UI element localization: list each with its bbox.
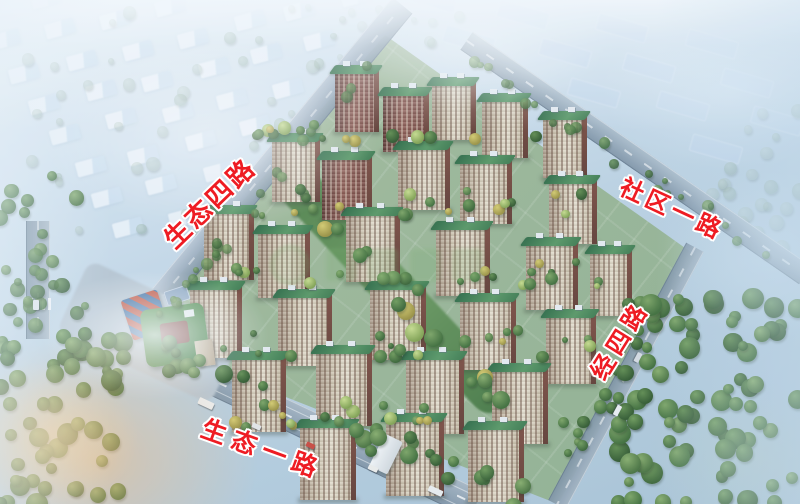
tree xyxy=(320,412,330,422)
tree xyxy=(404,188,416,200)
tree xyxy=(379,401,388,410)
tree xyxy=(370,429,387,446)
tree xyxy=(492,391,510,409)
tree xyxy=(4,184,18,198)
tree xyxy=(561,210,570,219)
fog-glow xyxy=(350,0,610,110)
tree xyxy=(478,373,492,387)
building-roof xyxy=(462,421,529,430)
background-villa xyxy=(44,18,77,40)
tree xyxy=(549,119,557,127)
tree xyxy=(285,350,297,362)
building-roof xyxy=(584,245,637,254)
building-side xyxy=(573,241,578,310)
tree xyxy=(500,199,509,208)
rooftop-structure xyxy=(524,359,531,364)
tree xyxy=(624,477,634,487)
tree xyxy=(485,333,493,341)
building-side xyxy=(543,367,548,444)
building-facade xyxy=(398,148,446,210)
tree xyxy=(46,255,59,268)
background-villa xyxy=(233,10,266,32)
tree xyxy=(386,129,399,142)
background-villa xyxy=(29,0,62,10)
building-side xyxy=(582,115,587,178)
tree xyxy=(620,453,641,474)
tree xyxy=(37,229,48,240)
tree xyxy=(201,258,213,270)
tree xyxy=(19,207,30,218)
tree xyxy=(599,388,612,401)
background-villa xyxy=(283,0,316,22)
fog-glow xyxy=(600,10,800,170)
aerial-masterplan-rendering: 生态四路 社区一路 经四路 生态一路 xyxy=(0,0,800,504)
rooftop-structure xyxy=(502,359,509,364)
watermark xyxy=(270,235,500,315)
tree xyxy=(22,53,35,66)
tree xyxy=(268,400,279,411)
rooftop-structure xyxy=(614,241,621,246)
tree xyxy=(388,343,394,349)
tree xyxy=(445,208,452,215)
tree xyxy=(28,248,43,263)
building-roof xyxy=(430,221,495,230)
building-roof xyxy=(454,155,517,164)
tree xyxy=(21,194,34,207)
tree xyxy=(212,238,223,249)
rooftop-structure xyxy=(490,151,497,156)
tree xyxy=(109,19,116,26)
tree xyxy=(424,131,437,144)
tree xyxy=(23,296,33,306)
tree xyxy=(13,317,23,327)
watermark-glyph xyxy=(410,249,440,281)
tree xyxy=(339,16,346,23)
tree xyxy=(14,278,22,286)
tree xyxy=(463,187,470,194)
rooftop-structure xyxy=(310,415,317,420)
tree xyxy=(398,209,410,221)
building-side xyxy=(281,355,286,432)
tree xyxy=(594,400,608,414)
tree xyxy=(340,396,352,408)
tree xyxy=(572,258,580,266)
rooftop-structure xyxy=(558,171,565,176)
rooftop-structure xyxy=(500,417,507,422)
tree xyxy=(334,416,345,427)
tree xyxy=(515,478,532,495)
building-roof xyxy=(543,175,602,184)
tree xyxy=(413,350,423,360)
tree xyxy=(419,403,429,413)
tree xyxy=(212,250,220,258)
tree xyxy=(26,155,38,167)
fog-glow xyxy=(640,380,800,504)
tree xyxy=(424,329,443,348)
tree xyxy=(576,188,587,199)
tree xyxy=(482,392,493,403)
rooftop-structure xyxy=(478,417,485,422)
tree xyxy=(642,342,653,353)
tree xyxy=(448,456,459,467)
rooftop-structure xyxy=(555,305,562,310)
tree xyxy=(565,125,575,135)
tree xyxy=(365,445,377,457)
building-side xyxy=(592,179,597,244)
rooftop-structure xyxy=(467,217,474,222)
tree xyxy=(558,417,569,428)
rooftop-structure xyxy=(439,347,446,352)
fog-glow xyxy=(0,360,140,504)
rooftop-structure xyxy=(326,341,333,346)
watermark-glyph xyxy=(326,249,356,281)
rooftop-structure xyxy=(556,233,563,238)
building xyxy=(468,428,520,502)
tree xyxy=(405,323,424,342)
building-roof xyxy=(486,363,553,372)
tree xyxy=(3,303,16,316)
rooftop-structure xyxy=(575,305,582,310)
background-villa xyxy=(7,63,40,85)
rooftop-structure xyxy=(598,241,605,246)
background-villa xyxy=(0,29,21,51)
tree xyxy=(123,6,136,19)
rooftop-structure xyxy=(348,341,355,346)
tree xyxy=(330,33,337,40)
tree xyxy=(536,351,548,363)
tree xyxy=(577,416,589,428)
building xyxy=(398,148,446,210)
rooftop-structure xyxy=(397,409,404,414)
building-side xyxy=(459,355,464,434)
tree xyxy=(527,268,536,277)
building-roof xyxy=(392,141,455,150)
tree xyxy=(374,350,387,363)
tree xyxy=(430,454,442,466)
tree xyxy=(530,131,542,143)
building-roof xyxy=(310,345,377,354)
watermark-logo xyxy=(270,245,310,285)
watermark-glyph xyxy=(368,249,398,281)
tree xyxy=(441,472,455,486)
background-villa xyxy=(154,0,187,18)
tree xyxy=(1,265,11,275)
watermark-glyph xyxy=(452,249,482,281)
tree xyxy=(613,392,625,404)
building-side xyxy=(367,349,372,426)
tree xyxy=(499,338,506,345)
tree xyxy=(513,325,523,335)
tree xyxy=(384,412,397,425)
building-facade xyxy=(468,428,520,502)
rooftop-structure xyxy=(470,151,477,156)
tree xyxy=(675,361,688,374)
building-roof xyxy=(540,309,601,318)
vehicle xyxy=(33,300,39,310)
building-roof xyxy=(520,237,583,246)
tree xyxy=(679,337,701,359)
tree xyxy=(545,272,558,285)
tree xyxy=(394,344,406,356)
rooftop-structure xyxy=(536,233,543,238)
building-side xyxy=(445,145,450,210)
building-side xyxy=(507,159,512,224)
rooftop-structure xyxy=(446,217,453,222)
building-roof xyxy=(400,351,469,360)
building-roof xyxy=(537,111,592,120)
rooftop-structure xyxy=(576,171,583,176)
tree xyxy=(349,423,363,437)
